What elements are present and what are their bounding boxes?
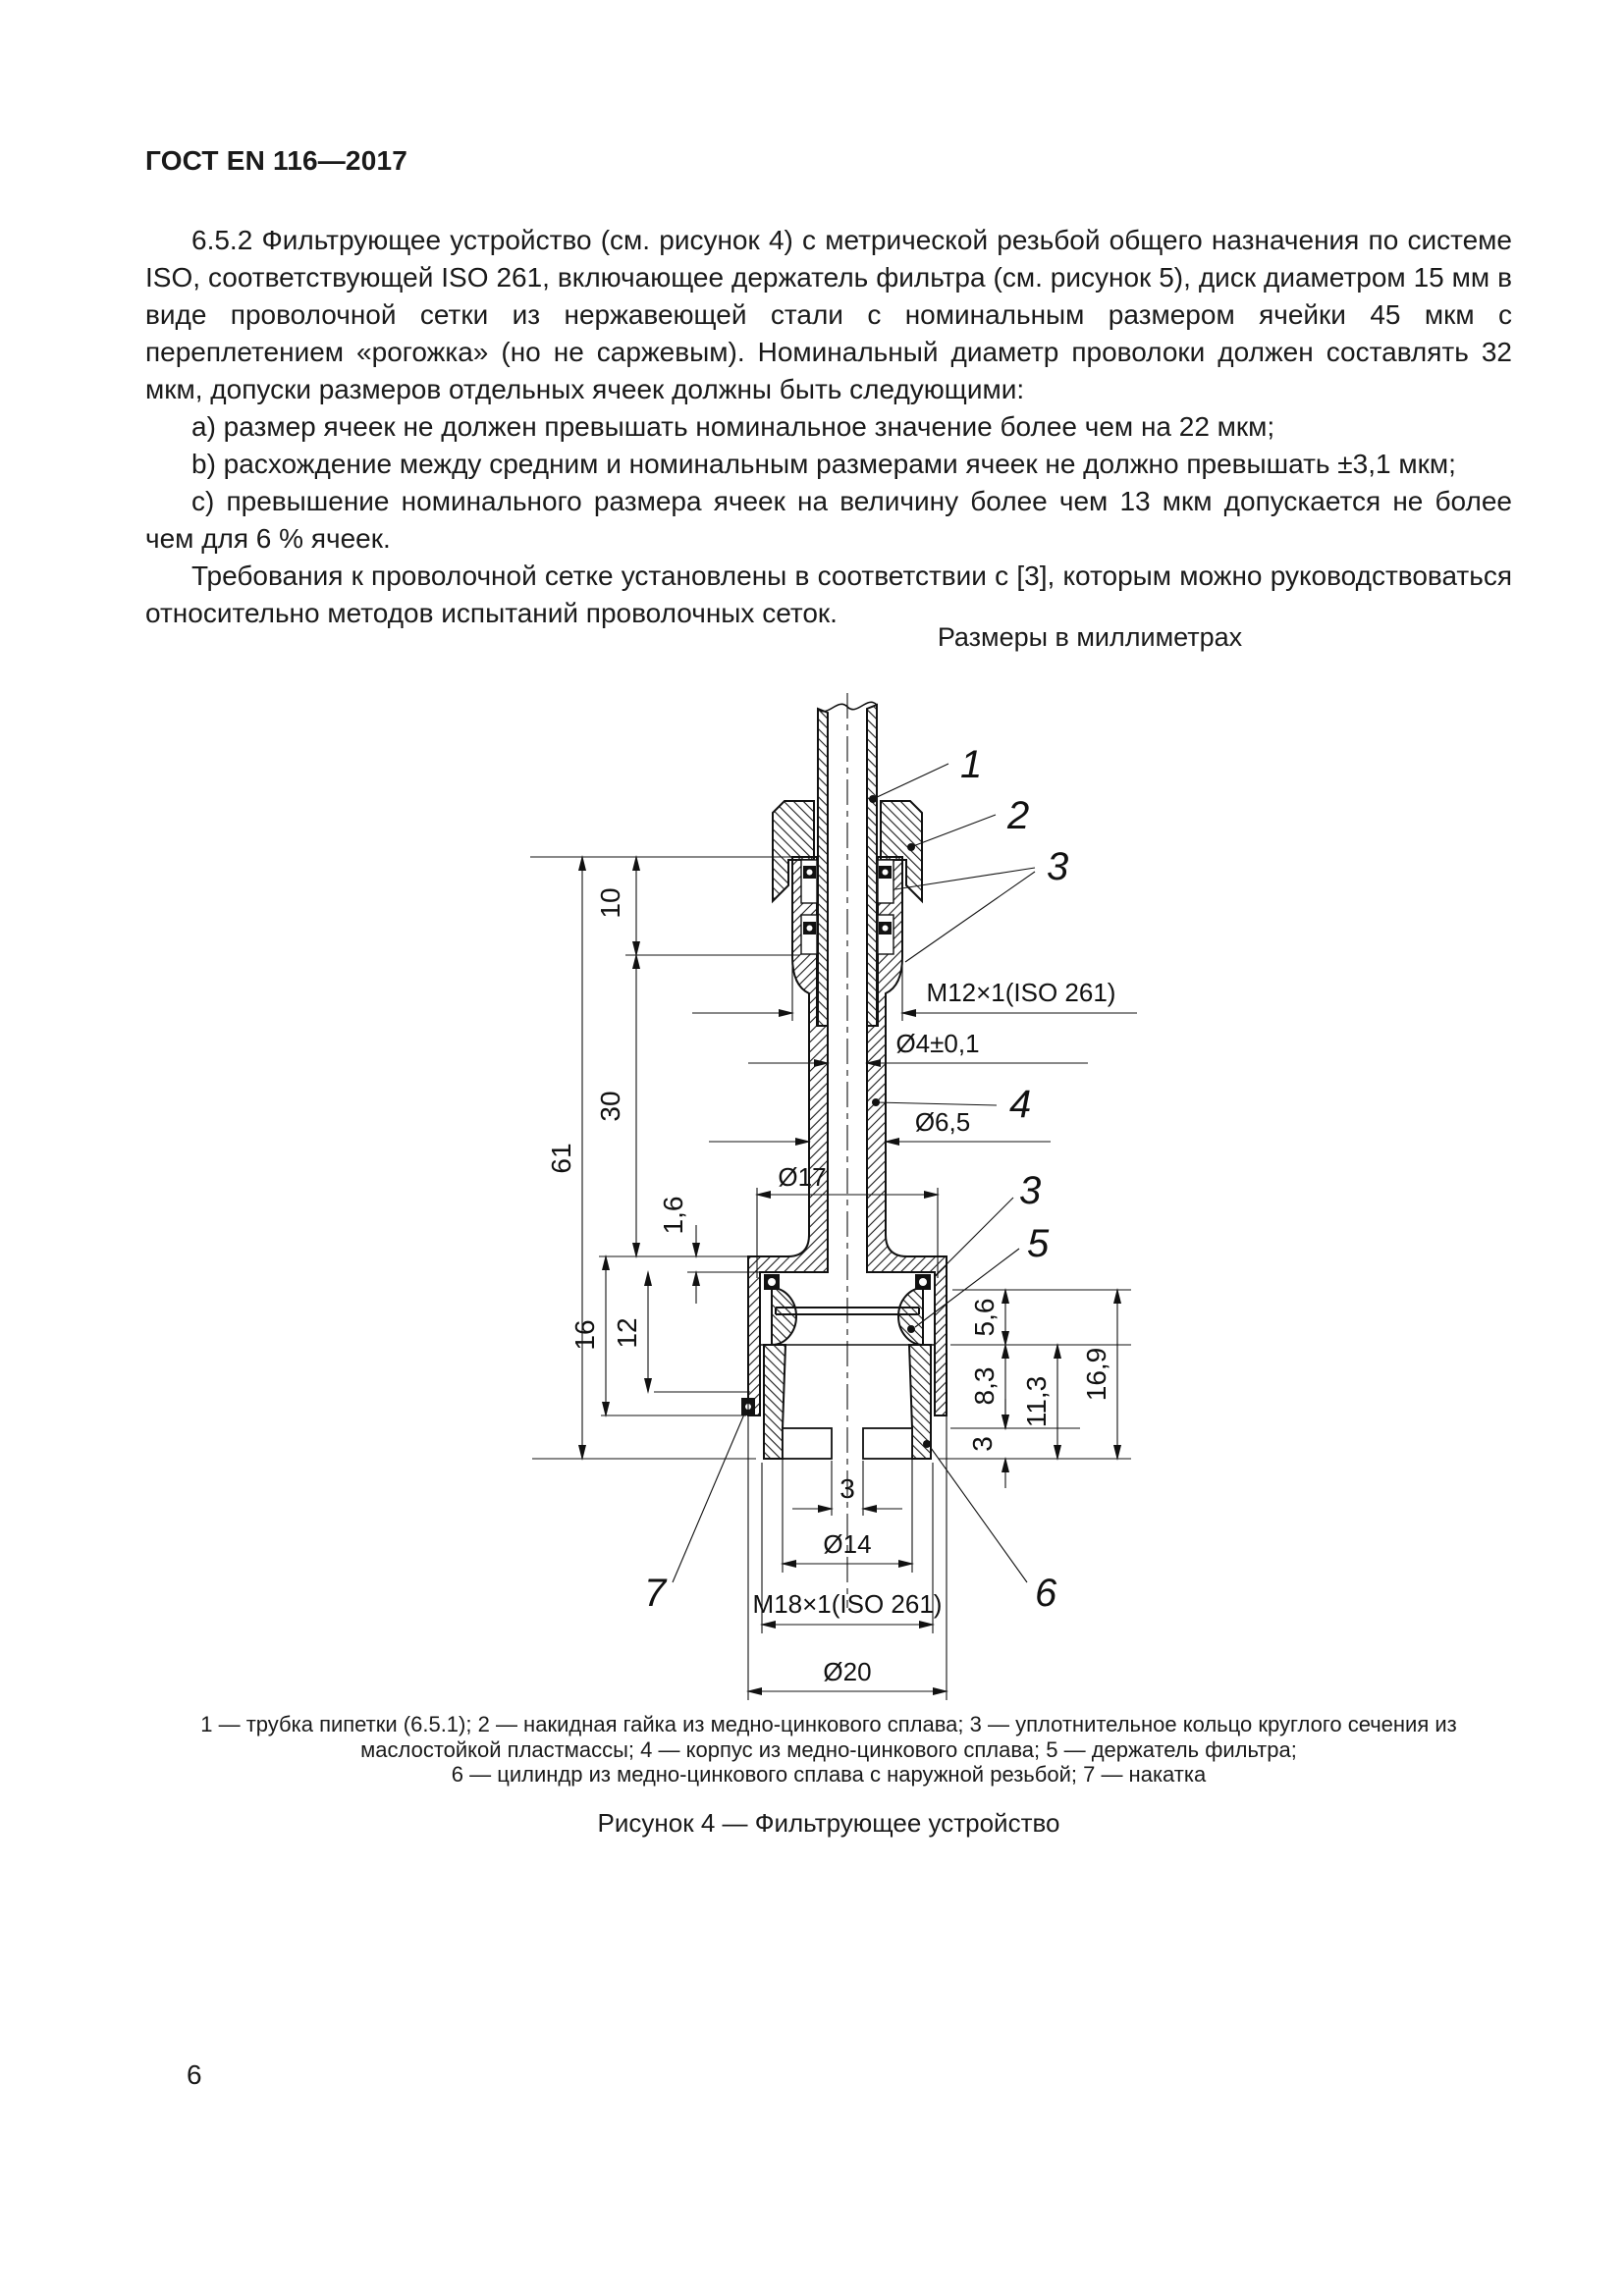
dimension-labels: 61 10 30 1,6 16 12 5,6 8,3 3 11,3 16,9 M… <box>546 887 1115 1686</box>
callout-nut: 2 <box>1006 794 1029 837</box>
callout-cylinder: 6 <box>1035 1572 1057 1615</box>
dim-thread-top: M12×1(ISO 261) <box>927 978 1116 1007</box>
callout-tube: 1 <box>960 743 982 786</box>
dim-cavity-depth: 8,3 <box>969 1367 1000 1406</box>
dim-lower-total: 16,9 <box>1081 1348 1111 1402</box>
dim-slot-width: 3 <box>839 1473 855 1504</box>
dim-bottom-wall: 3 <box>967 1436 998 1452</box>
filter-device-cross-section: 61 10 30 1,6 16 12 5,6 8,3 3 11,3 16,9 M… <box>363 667 1149 1708</box>
dim-middle-section: 30 <box>595 1091 625 1121</box>
dim-top-section: 10 <box>595 887 625 918</box>
dim-thread-bottom: M18×1(ISO 261) <box>753 1589 943 1619</box>
page-number: 6 <box>187 2059 202 2091</box>
caption-line-1: 1 — трубка пипетки (6.5.1); 2 — накидная… <box>145 1712 1512 1737</box>
paragraph-6-5-2: 6.5.2 Фильтрующее устройство (см. рисуно… <box>145 222 1512 408</box>
callout-oring-bottom: 3 <box>1019 1169 1041 1212</box>
list-item-a: а) размер ячеек не должен превышать номи… <box>145 408 1512 446</box>
device-parts <box>741 702 947 1459</box>
dim-inner-depth: 12 <box>612 1317 642 1348</box>
part-callouts: 1 2 3 4 3 5 7 6 <box>644 743 1068 1615</box>
units-note: Размеры в миллиметрах <box>815 622 1365 653</box>
dim-cavity-dia: Ø14 <box>823 1529 871 1559</box>
paragraph-mesh-requirements: Требования к проволочной сетке установле… <box>145 558 1512 632</box>
dim-overall-height: 61 <box>546 1143 576 1173</box>
dim-holder-height: 5,6 <box>969 1299 1000 1337</box>
callout-knurl: 7 <box>644 1572 668 1615</box>
document-page: ГОСТ EN 116—2017 6.5.2 Фильтрующее устро… <box>0 0 1624 2296</box>
caption-line-2: маслостойкой пластмассы; 4 — корпус из м… <box>145 1737 1512 1763</box>
figure-4-drawing: 61 10 30 1,6 16 12 5,6 8,3 3 11,3 16,9 M… <box>363 667 1149 1708</box>
dim-lower-inner: 11,3 <box>1021 1376 1052 1427</box>
callout-body: 4 <box>1009 1083 1031 1126</box>
caption-line-3: 6 — цилиндр из медно-цинкового сплава с … <box>145 1762 1512 1788</box>
dim-lower-section: 16 <box>569 1319 600 1350</box>
standard-code-header: ГОСТ EN 116—2017 <box>145 145 407 177</box>
body-text-block: 6.5.2 Фильтрующее устройство (см. рисуно… <box>145 222 1512 632</box>
figure-caption: 1 — трубка пипетки (6.5.1); 2 — накидная… <box>145 1712 1512 1788</box>
dim-groove-dia: Ø17 <box>778 1162 826 1192</box>
dim-flange-lip: 1,6 <box>658 1197 688 1235</box>
dim-bore: Ø4±0,1 <box>895 1029 979 1058</box>
dim-body-dia: Ø6,5 <box>915 1107 970 1137</box>
list-item-b: b) расхождение между средним и номинальн… <box>145 446 1512 483</box>
figure-number-label: Рисунок 4 — Фильтрующее устройство <box>145 1808 1512 1839</box>
callout-holder: 5 <box>1027 1222 1050 1265</box>
dim-outer-dia: Ø20 <box>823 1657 871 1686</box>
callout-oring-top: 3 <box>1047 845 1068 888</box>
list-item-c: c) превышение номинального размера ячеек… <box>145 483 1512 558</box>
